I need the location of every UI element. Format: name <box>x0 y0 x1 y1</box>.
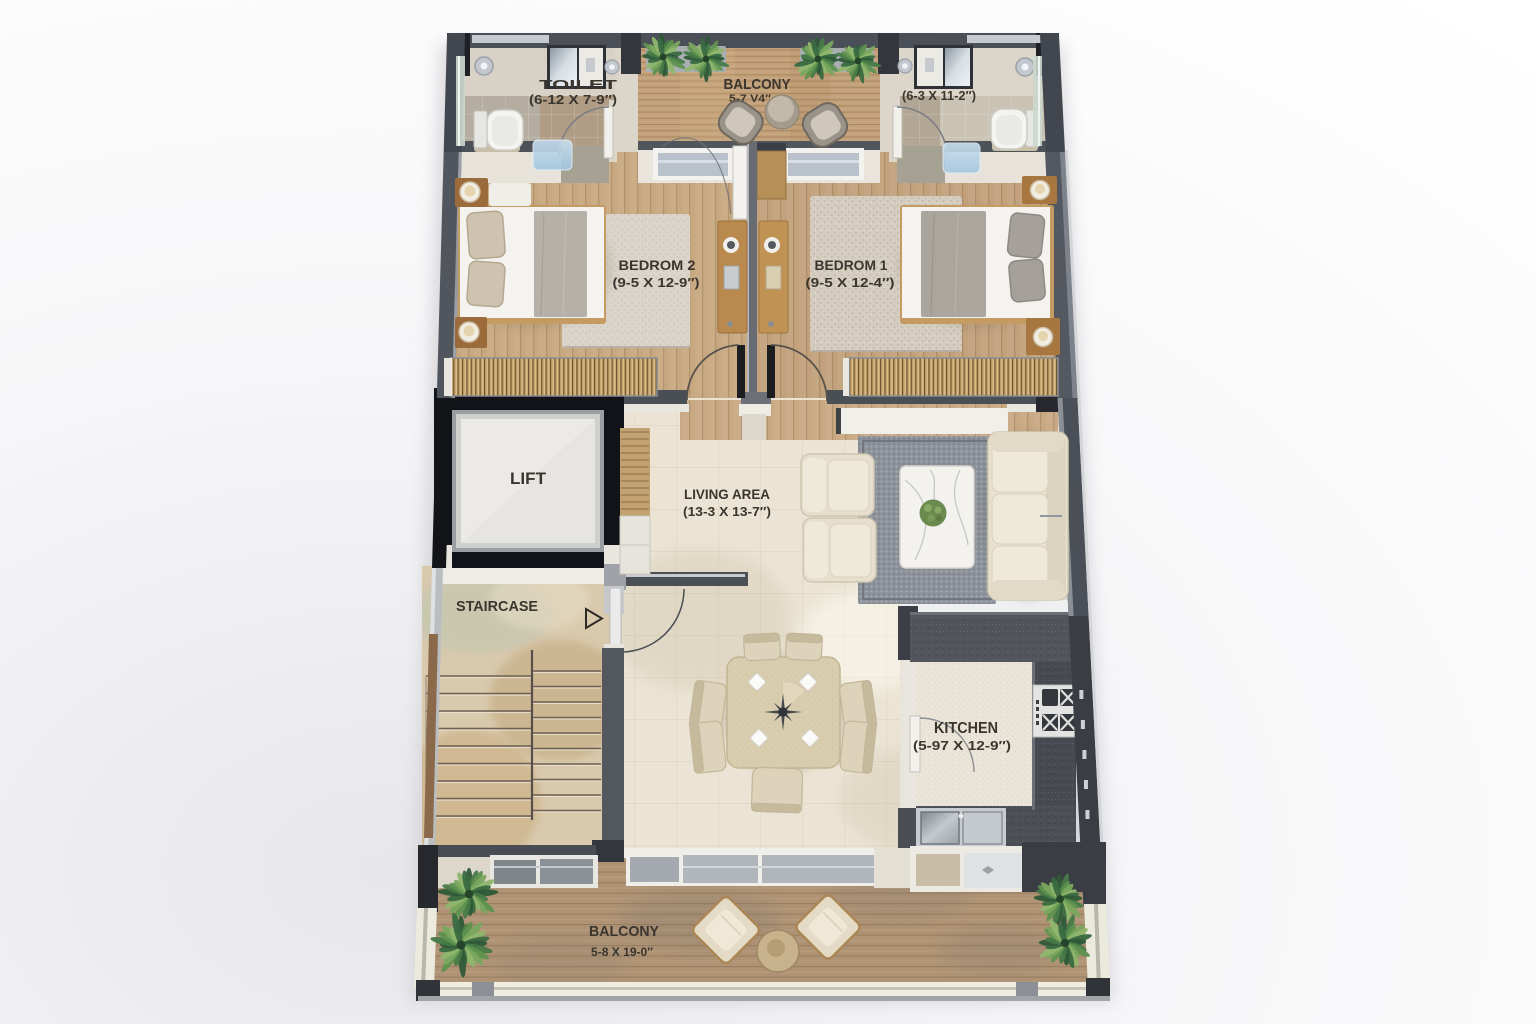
svg-text:BALCONY: BALCONY <box>724 76 791 93</box>
svg-text:5-8 X 19-0″: 5-8 X 19-0″ <box>591 945 653 959</box>
svg-text:(5-97 X 12-9″): (5-97 X 12-9″) <box>913 739 1011 753</box>
svg-text:BEDROM 2: BEDROM 2 <box>619 257 696 273</box>
svg-text:BEDROM 1: BEDROM 1 <box>815 257 888 273</box>
svg-text:(9-5 X 12-4″): (9-5 X 12-4″) <box>806 276 895 290</box>
svg-text:KITCHEN: KITCHEN <box>934 720 998 737</box>
svg-text:(9-5 X 12-9″): (9-5 X 12-9″) <box>613 276 700 290</box>
svg-text:(6-12 X 7-9″): (6-12 X 7-9″) <box>529 93 617 107</box>
svg-text:(13-3 X 13-7″): (13-3 X 13-7″) <box>683 505 771 519</box>
svg-text:TOILET: TOILET <box>539 78 618 92</box>
svg-text:(6-3 X 11-2″): (6-3 X 11-2″) <box>902 89 976 103</box>
svg-text:LIVING AREA: LIVING AREA <box>684 486 770 502</box>
svg-text:STAIRCASE: STAIRCASE <box>456 598 538 615</box>
svg-text:LIFT: LIFT <box>510 469 547 488</box>
svg-text:BALCONY: BALCONY <box>589 923 659 940</box>
